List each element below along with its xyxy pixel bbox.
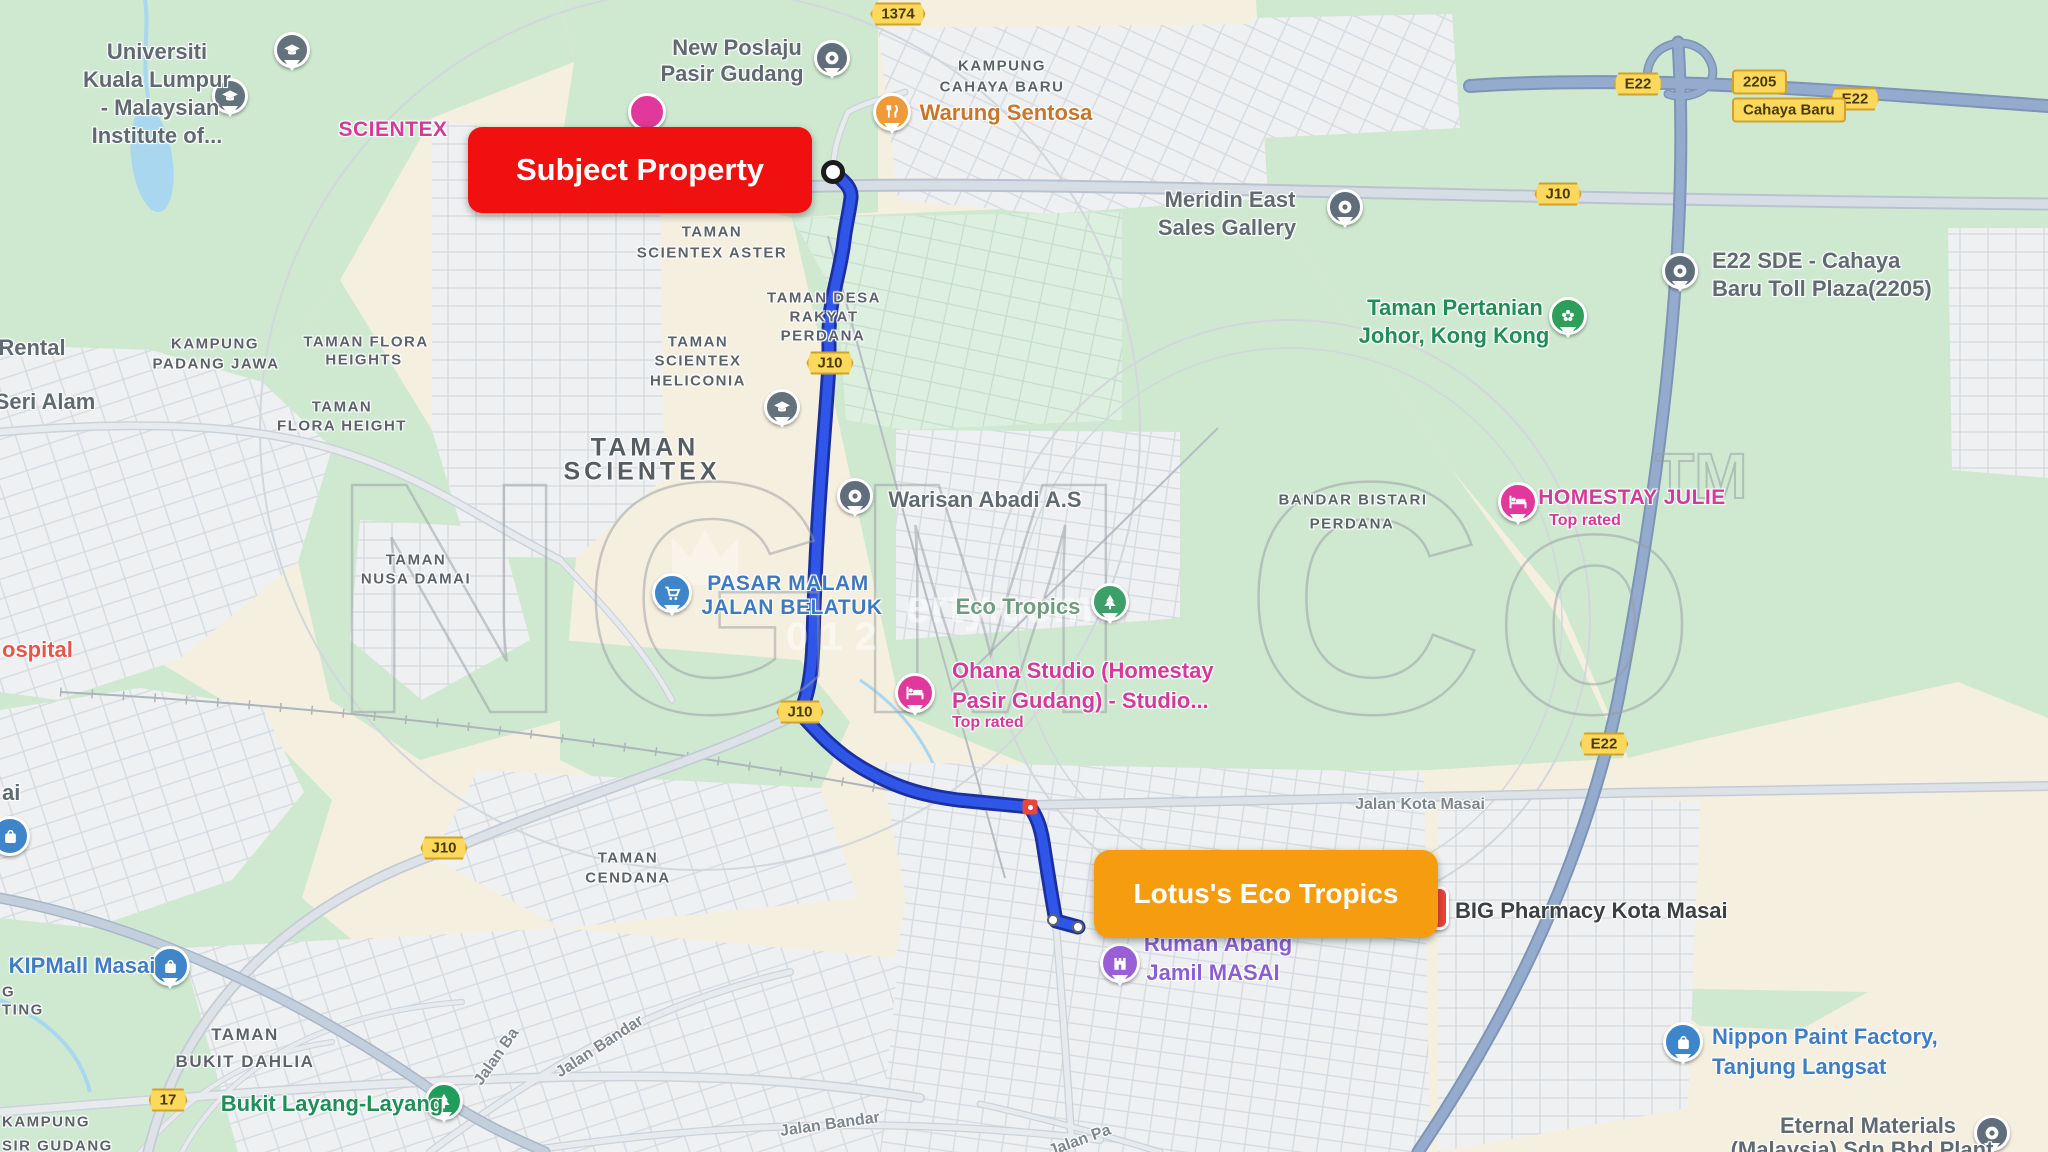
subject-property-callout: Subject Property bbox=[468, 127, 812, 213]
meridin-pin[interactable] bbox=[1327, 189, 1363, 225]
subject-property-label: Subject Property bbox=[516, 152, 764, 188]
poi-label-ohana[interactable]: Ohana Studio (Homestay bbox=[952, 658, 1214, 684]
area-label-heliconia: HELICONIA bbox=[650, 373, 746, 390]
lotus-label: Lotus's Eco Tropics bbox=[1134, 878, 1399, 910]
poi-label-meridin[interactable]: Sales Gallery bbox=[1158, 215, 1296, 241]
area-label-bandar-bistari: PERDANA bbox=[1310, 516, 1395, 533]
eco-tropics-pin[interactable] bbox=[1091, 583, 1129, 621]
building-icon bbox=[1111, 954, 1129, 972]
area-label-masai-partial: ai bbox=[2, 780, 20, 806]
area-label-desa-rakyat: TAMAN DESA bbox=[767, 290, 881, 307]
poi-label-eternal[interactable]: Eternal Materials bbox=[1780, 1113, 1956, 1139]
area-label-bukit-dahlia: BUKIT DAHLIA bbox=[176, 1052, 315, 1072]
route-start-marker[interactable] bbox=[821, 160, 845, 184]
poi-label-nippon[interactable]: Tanjung Langsat bbox=[1712, 1054, 1886, 1080]
poi-label-toll-plaza[interactable]: Baru Toll Plaza(2205) bbox=[1712, 276, 1932, 302]
area-label-kampung-pg: KAMPUNG bbox=[2, 1114, 90, 1131]
poi-label-universiti[interactable]: Institute of... bbox=[92, 123, 223, 149]
area-label-desa-rakyat: PERDANA bbox=[781, 328, 866, 345]
poi-label-nippon[interactable]: Nippon Paint Factory, bbox=[1712, 1024, 1938, 1050]
area-label-padang-jawa: PADANG JAWA bbox=[152, 356, 279, 373]
map-container: NGM Co TM erty.com 012 Universiti Kuala … bbox=[0, 0, 2048, 1152]
area-label-scientex-aster: SCIENTEX ASTER bbox=[637, 245, 787, 262]
route-shield-j10: J10 bbox=[1534, 183, 1581, 206]
map-canvas[interactable]: NGM Co TM erty.com 012 bbox=[0, 0, 2048, 1152]
ohana-studio-pin[interactable] bbox=[895, 673, 935, 713]
hidden-poi-pin[interactable] bbox=[628, 93, 666, 131]
area-label-desa-rakyat: RAKYAT bbox=[789, 309, 858, 326]
area-label-heliconia: TAMAN bbox=[668, 334, 729, 351]
shopping-bag-icon bbox=[1, 827, 20, 846]
poi-label-new-poslaju[interactable]: New Poslaju bbox=[672, 35, 802, 61]
warung-sentosa-pin[interactable] bbox=[873, 93, 911, 131]
route-shield-17: 17 bbox=[149, 1089, 188, 1112]
area-label-kampung-pg: SIR GUDANG bbox=[2, 1138, 113, 1152]
area-label-taman-scientex: SCIENTEX bbox=[563, 458, 720, 487]
route-end-marker[interactable] bbox=[1072, 921, 1084, 933]
poi-label-top-rated: Top rated bbox=[1549, 512, 1621, 530]
poi-label-seri-alam: Seri Alam bbox=[0, 389, 95, 415]
area-label-flora-heights: TAMAN FLORA bbox=[303, 334, 428, 351]
poi-label-eternal[interactable]: (Malaysia) Sdn Bhd Plant bbox=[1731, 1137, 1994, 1152]
tree-icon bbox=[1101, 593, 1119, 611]
poi-label-warisan[interactable]: Warisan Abadi A.S bbox=[888, 487, 1081, 513]
restaurant-icon bbox=[883, 103, 901, 121]
area-label-partial-ting: TING bbox=[2, 1002, 44, 1019]
area-label-kampung-cahaya: KAMPUNG bbox=[958, 58, 1046, 75]
poi-label-top-rated: Top rated bbox=[952, 714, 1024, 732]
shopping-bag-icon bbox=[1674, 1033, 1693, 1052]
university-pin[interactable] bbox=[274, 32, 310, 68]
homestay-julie-pin[interactable] bbox=[1498, 482, 1538, 522]
warisan-pin[interactable] bbox=[837, 478, 873, 514]
poi-label-warung-sentosa[interactable]: Warung Sentosa bbox=[920, 100, 1093, 126]
poi-label-ohana[interactable]: Pasir Gudang) - Studio... bbox=[952, 688, 1209, 714]
poi-label-new-poslaju[interactable]: Pasir Gudang bbox=[660, 61, 803, 87]
poi-label-ruman-abang[interactable]: Jamil MASAI bbox=[1146, 960, 1279, 986]
taman-pertanian-pin[interactable] bbox=[1549, 297, 1587, 335]
route-incident-icon bbox=[1023, 800, 1038, 815]
toll-plaza-pin[interactable] bbox=[1662, 253, 1698, 289]
poi-label-meridin[interactable]: Meridin East bbox=[1165, 187, 1296, 213]
route-shield-e22: E22 bbox=[1580, 733, 1629, 756]
poi-label-hospital-partial: ospital bbox=[2, 637, 73, 663]
poi-label-toll-plaza[interactable]: E22 SDE - Cahaya bbox=[1712, 248, 1900, 274]
new-poslaju-pin[interactable] bbox=[814, 40, 850, 76]
shopping-cart-icon bbox=[663, 584, 682, 603]
poi-label-kipmall[interactable]: KIPMall Masai bbox=[9, 953, 156, 979]
place-icon bbox=[1336, 198, 1354, 216]
area-label-nusa-damai: NUSA DAMAI bbox=[361, 571, 471, 588]
poi-label-pasar-malam[interactable]: PASAR MALAM bbox=[707, 572, 868, 596]
graduation-cap-icon bbox=[283, 41, 301, 59]
kipmall-pin[interactable] bbox=[150, 946, 190, 986]
poi-label-taman-pertanian[interactable]: Taman Pertanian bbox=[1367, 295, 1543, 321]
area-label-partial-g: G bbox=[2, 984, 15, 1001]
area-label-flora-height: FLORA HEIGHT bbox=[277, 418, 407, 435]
route-shield-e22: E22 bbox=[1614, 73, 1663, 96]
svg-text:012: 012 bbox=[786, 615, 889, 659]
area-label-scientex-aster: TAMAN bbox=[682, 224, 743, 241]
graduation-cap-icon bbox=[773, 398, 791, 416]
poi-label-taman-pertanian[interactable]: Johor, Kong Kong bbox=[1359, 323, 1550, 349]
area-label-padang-jawa: KAMPUNG bbox=[171, 336, 259, 353]
area-label-heliconia: SCIENTEX bbox=[654, 353, 741, 370]
poi-label-eco-tropics[interactable]: Eco Tropics bbox=[956, 594, 1081, 620]
route-shield-2205: 2205 bbox=[1732, 70, 1787, 95]
area-label-bukit-dahlia: TAMAN bbox=[211, 1025, 279, 1045]
place-icon bbox=[1671, 262, 1689, 280]
poi-label-big-pharmacy[interactable]: BIG Pharmacy Kota Masai bbox=[1455, 898, 1728, 924]
street-label-kota-masai: Jalan Kota Masai bbox=[1355, 796, 1485, 814]
place-icon bbox=[823, 49, 841, 67]
area-label-nusa-damai: TAMAN bbox=[386, 552, 447, 569]
route-waypoint-dot bbox=[1047, 914, 1059, 926]
svg-text:Co: Co bbox=[1245, 413, 1705, 782]
bed-icon bbox=[905, 683, 925, 703]
poi-label-universiti[interactable]: Kuala Lumpur bbox=[83, 67, 231, 93]
route-shield-1374: 1374 bbox=[870, 3, 925, 26]
place-icon bbox=[846, 487, 864, 505]
poi-label-scientex-partial[interactable]: SCIENTEX bbox=[338, 118, 447, 142]
poi-label-pasar-malam[interactable]: JALAN BELATUK bbox=[701, 596, 882, 620]
route-shield-cahaya-baru: Cahaya Baru bbox=[1732, 98, 1846, 123]
route-shield-j10: J10 bbox=[806, 352, 853, 375]
area-label-flora-height: TAMAN bbox=[312, 399, 373, 416]
shopping-bag-icon bbox=[161, 957, 180, 976]
pasar-malam-pin[interactable] bbox=[652, 573, 692, 613]
bed-icon bbox=[1508, 492, 1528, 512]
route-shield-j10: J10 bbox=[776, 701, 823, 724]
flower-icon bbox=[1559, 307, 1577, 325]
poi-label-universiti[interactable]: Universiti bbox=[107, 39, 207, 65]
poi-label-universiti[interactable]: - Malaysian bbox=[101, 95, 220, 121]
area-label-flora-heights: HEIGHTS bbox=[325, 352, 402, 369]
area-label-bandar-bistari: BANDAR BISTARI bbox=[1278, 492, 1427, 509]
poi-label-rental: Rental bbox=[0, 335, 66, 361]
nippon-paint-pin[interactable] bbox=[1663, 1022, 1703, 1062]
area-label-cendana: CENDANA bbox=[585, 870, 671, 887]
lotus-eco-tropics-callout: Lotus's Eco Tropics bbox=[1094, 850, 1438, 938]
area-label-kampung-cahaya: CAHAYA BARU bbox=[940, 79, 1065, 96]
ruman-abang-pin[interactable] bbox=[1100, 943, 1140, 983]
route-shield-j10: J10 bbox=[420, 837, 467, 860]
area-label-cendana: TAMAN bbox=[598, 850, 659, 867]
poi-label-bukit-layang[interactable]: Bukit Layang-Layang bbox=[221, 1091, 443, 1117]
school-pin[interactable] bbox=[764, 389, 800, 425]
poi-label-homestay-julie[interactable]: HOMESTAY JULIE bbox=[1538, 486, 1726, 510]
